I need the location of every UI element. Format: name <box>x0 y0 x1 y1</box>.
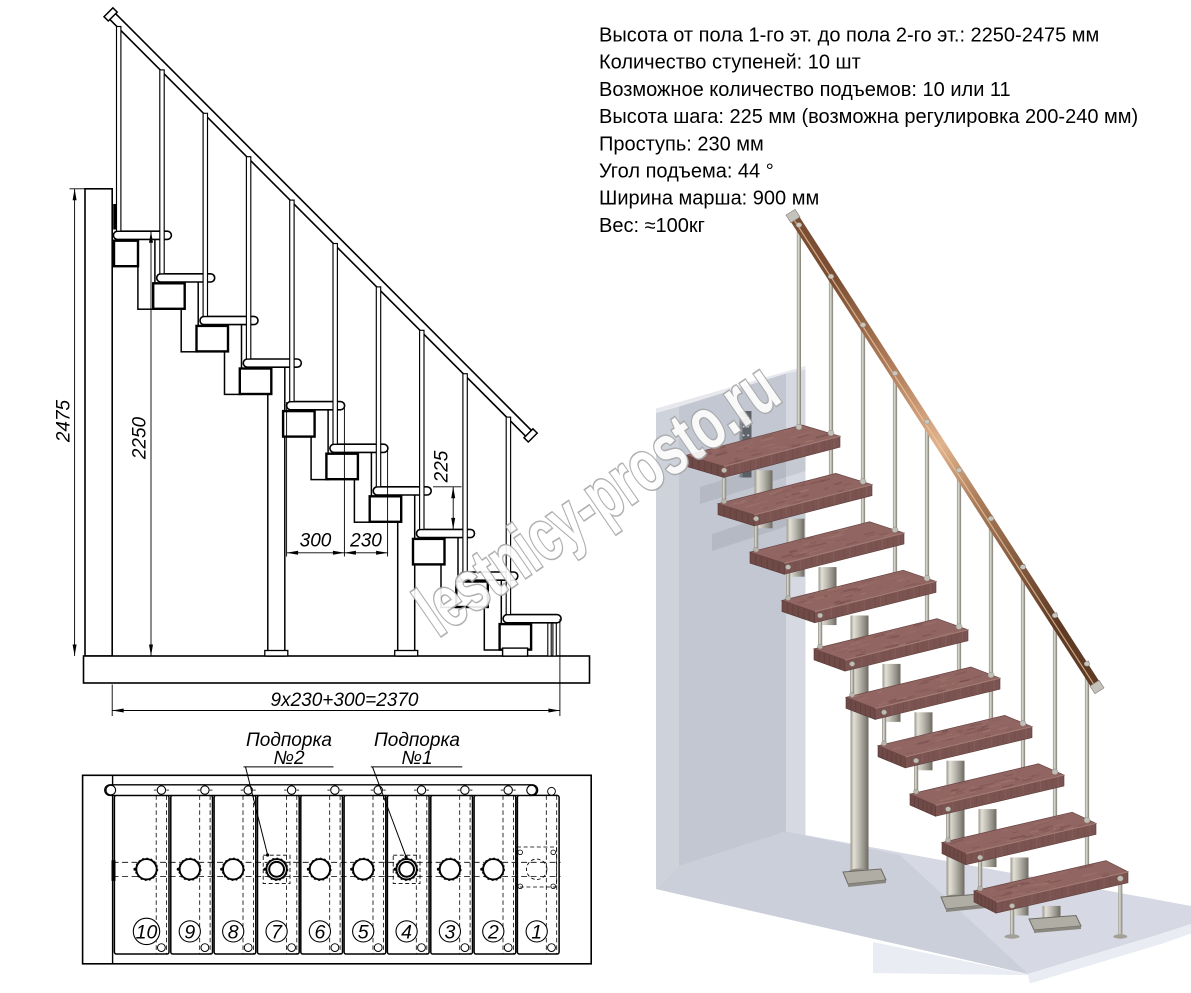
svg-text:9x230+300=2370: 9x230+300=2370 <box>271 690 419 711</box>
svg-text:Количество ступеней: 10 шт: Количество ступеней: 10 шт <box>599 52 861 74</box>
svg-text:6: 6 <box>314 921 325 943</box>
svg-text:Вес: ≈100кг: Вес: ≈100кг <box>599 215 705 237</box>
svg-text:300: 300 <box>300 531 332 552</box>
svg-text:Угол подъема: 44 °: Угол подъема: 44 ° <box>599 161 774 183</box>
svg-text:№1: №1 <box>401 748 432 769</box>
svg-text:10: 10 <box>136 921 158 943</box>
svg-text:230: 230 <box>349 531 382 552</box>
svg-text:1: 1 <box>531 921 542 943</box>
svg-text:9: 9 <box>184 921 195 943</box>
svg-text:Высота шага: 225 мм (возможна: Высота шага: 225 мм (возможна регулировк… <box>599 106 1138 128</box>
svg-text:Проступь: 230 мм: Проступь: 230 мм <box>599 133 764 155</box>
svg-text:Высота от пола 1-го эт. до пол: Высота от пола 1-го эт. до пола 2-го эт.… <box>599 25 1099 47</box>
svg-text:5: 5 <box>358 921 369 943</box>
svg-text:Ширина марша: 900 мм: Ширина марша: 900 мм <box>599 188 819 210</box>
svg-text:4: 4 <box>401 921 412 943</box>
svg-text:№2: №2 <box>273 748 305 769</box>
svg-text:Возможное количество подъемов:: Возможное количество подъемов: 10 или 11 <box>599 79 1011 101</box>
svg-text:2: 2 <box>487 921 499 943</box>
svg-text:8: 8 <box>228 921 239 943</box>
svg-text:7: 7 <box>271 921 283 943</box>
svg-text:2250: 2250 <box>130 416 151 460</box>
svg-text:2475: 2475 <box>54 399 75 443</box>
svg-text:3: 3 <box>444 921 455 943</box>
svg-text:225: 225 <box>432 450 453 483</box>
